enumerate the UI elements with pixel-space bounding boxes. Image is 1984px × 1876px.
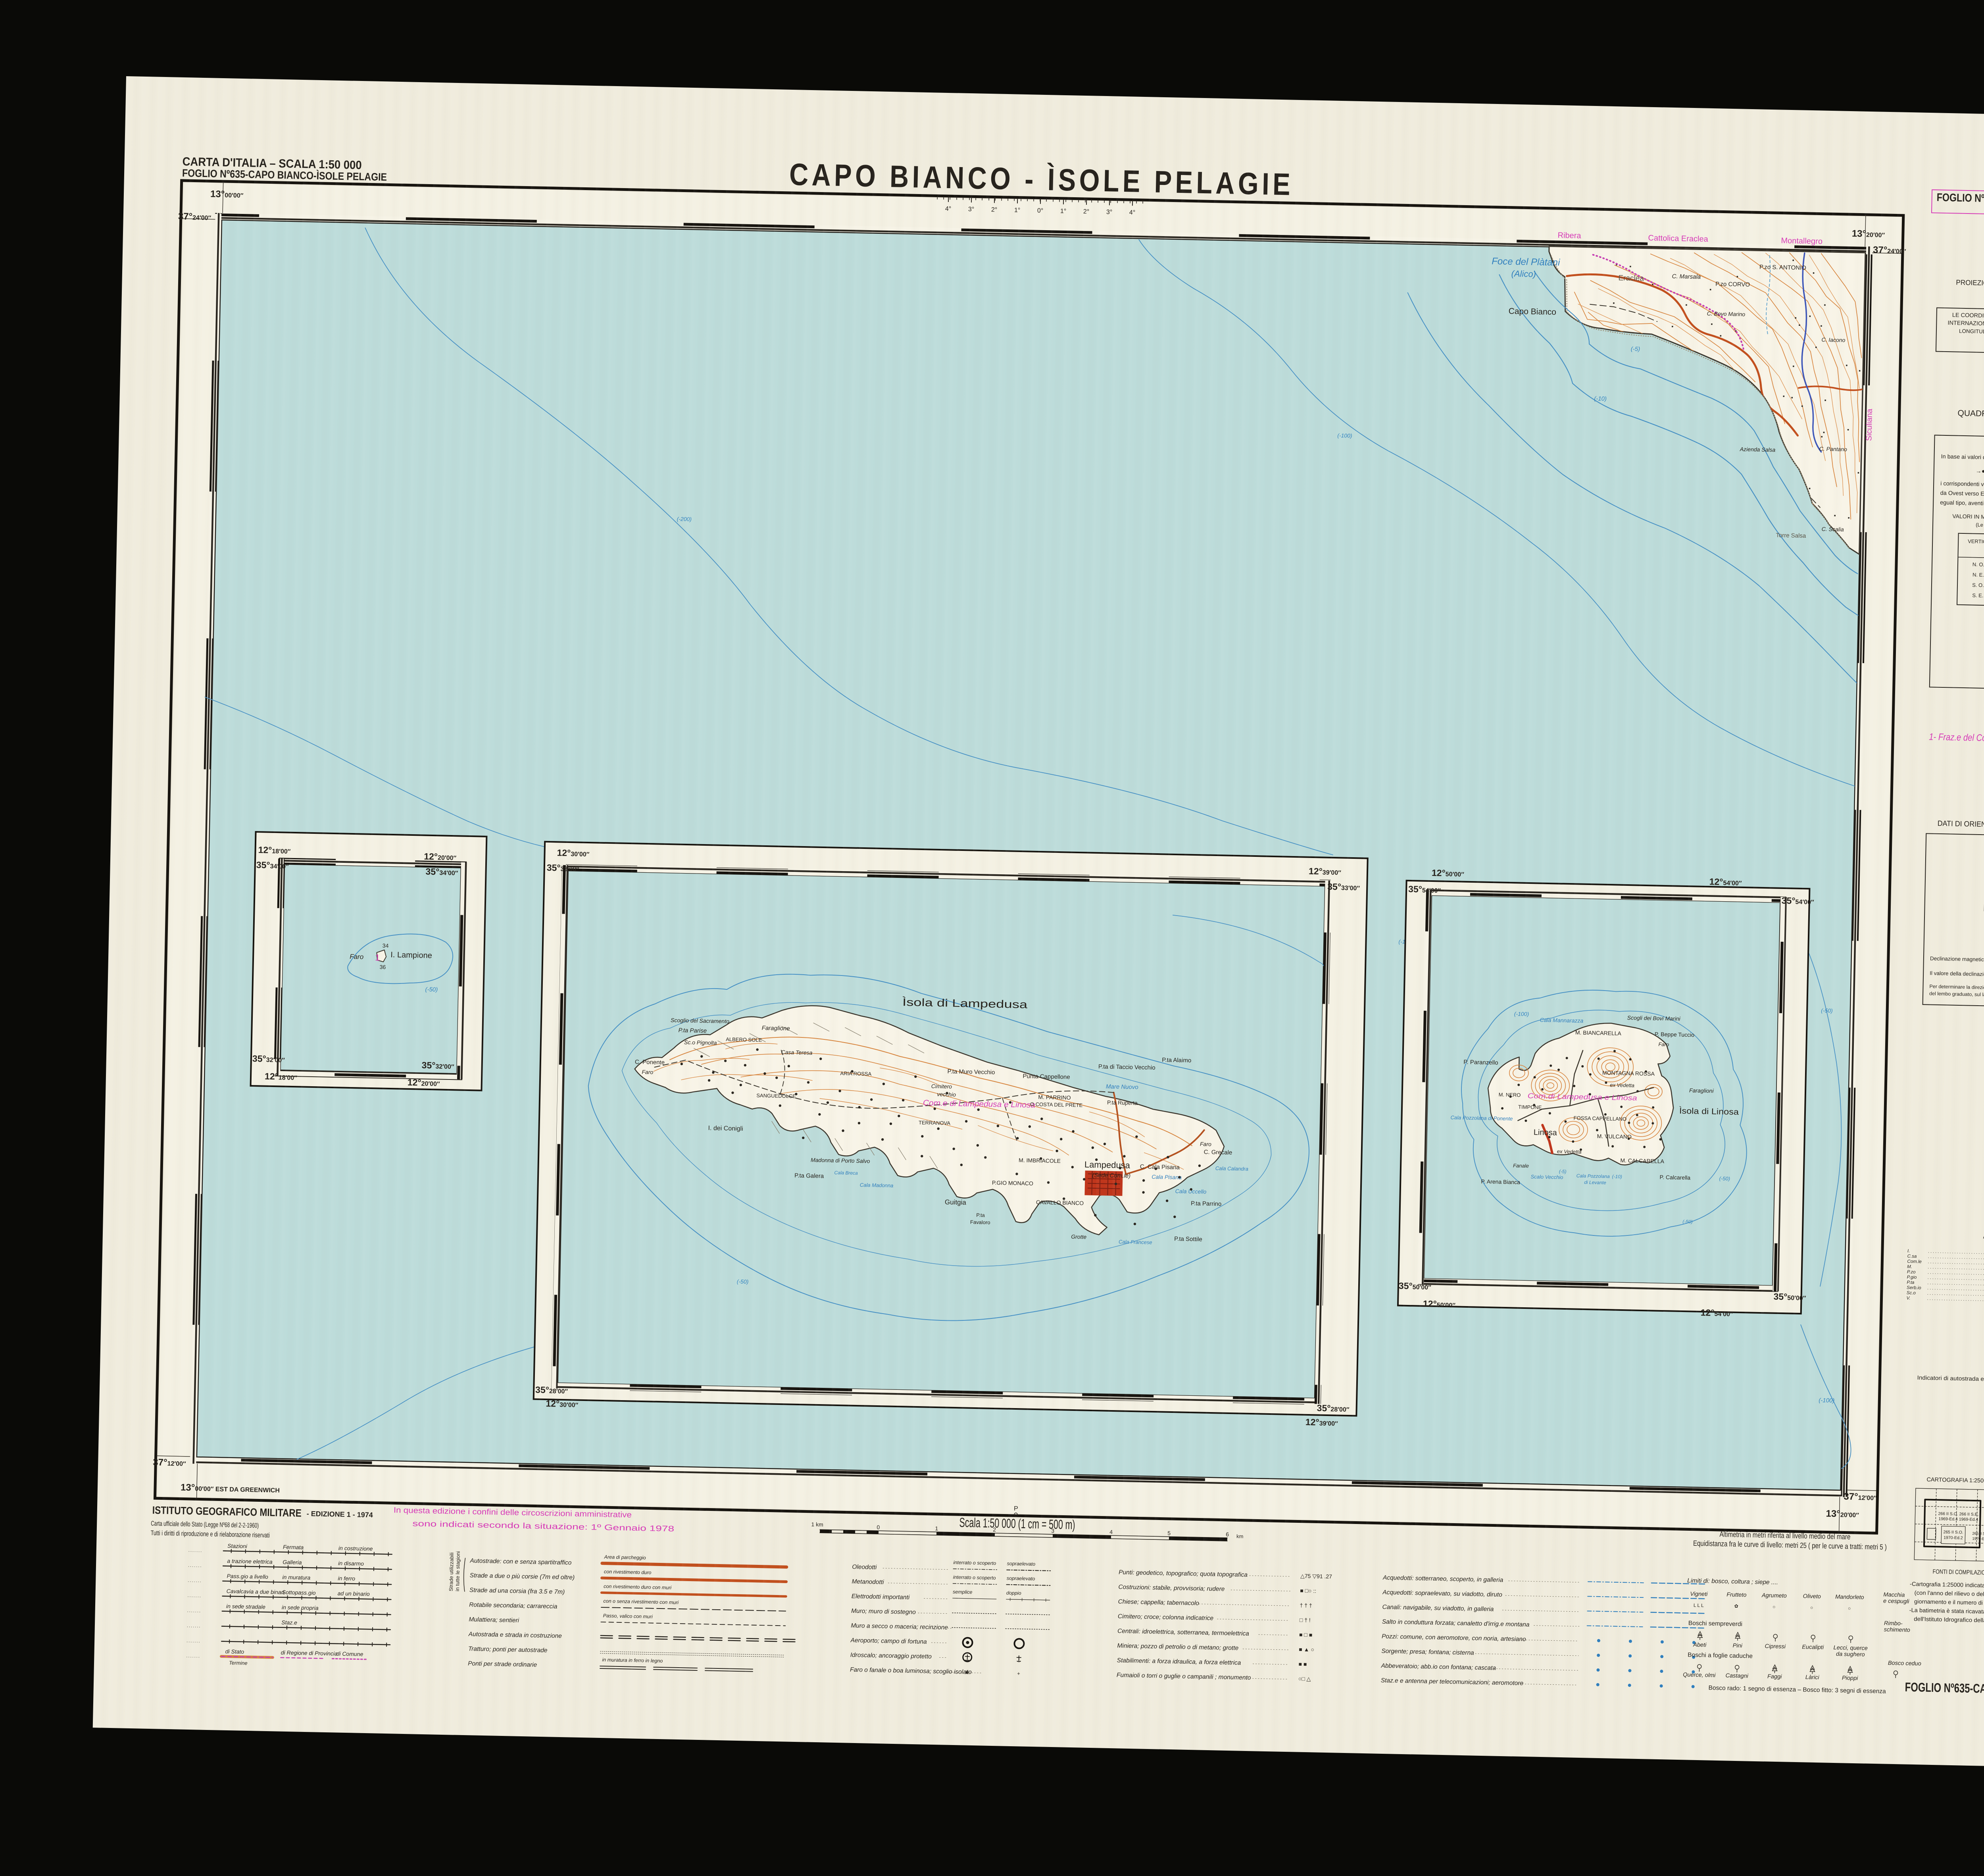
svg-text:ad un binario: ad un binario	[338, 1590, 370, 1597]
svg-text:Pioppi: Pioppi	[1842, 1675, 1858, 1682]
svg-text:C. Pantano: C. Pantano	[1819, 446, 1848, 452]
svg-text:.......: .......	[186, 1654, 200, 1659]
svg-text:Querce, olmi: Querce, olmi	[1683, 1672, 1716, 1679]
svg-text:MONTAGNA ROSSA: MONTAGNA ROSSA	[1602, 1070, 1655, 1077]
svg-text:FOSSA CAPPELLANO: FOSSA CAPPELLANO	[1573, 1115, 1626, 1122]
svg-text:sopraelevato: sopraelevato	[1007, 1561, 1035, 1567]
svg-text:Staz.e: Staz.e	[281, 1619, 297, 1626]
svg-text:in ferro: in ferro	[338, 1575, 355, 1582]
svg-text:ex Vedetta: ex Vedetta	[1610, 1082, 1634, 1088]
svg-text:di Levante: di Levante	[1584, 1179, 1606, 1185]
svg-text:Vigneti: Vigneti	[1690, 1591, 1708, 1598]
svg-text:P. Calcarella: P. Calcarella	[1659, 1174, 1690, 1181]
svg-text:Idroscalo; ancoraggio protetto: Idroscalo; ancoraggio protetto	[850, 1652, 932, 1660]
svg-text:P.ta Parrino: P.ta Parrino	[1191, 1200, 1222, 1208]
svg-text:Ìsola di Lampedusa: Ìsola di Lampedusa	[902, 996, 1028, 1010]
svg-text:L L L: L L L	[1694, 1603, 1704, 1609]
svg-text:1970-Ed.2: 1970-Ed.2	[1944, 1535, 1963, 1540]
svg-text:Guitgia: Guitgia	[945, 1198, 967, 1206]
svg-text:Cavalcavia a due binari: Cavalcavia a due binari	[227, 1588, 285, 1595]
svg-text:Boschi sempreverdi: Boschi sempreverdi	[1688, 1620, 1742, 1628]
svg-text:semplice: semplice	[953, 1589, 973, 1595]
svg-text:P. Arena Bianca: P. Arena Bianca	[1481, 1178, 1520, 1185]
svg-text:C. Marsala: C. Marsala	[1672, 273, 1701, 280]
svg-text:di Comune: di Comune	[336, 1651, 363, 1657]
svg-text:TIMPONE: TIMPONE	[1518, 1104, 1542, 1110]
svg-text:Lecci, querce: Lecci, querce	[1833, 1645, 1868, 1652]
svg-text:△75 ▽91 .27: △75 ▽91 .27	[1300, 1573, 1332, 1580]
svg-text:Sottopass.gio: Sottopass.gio	[282, 1589, 316, 1596]
svg-text:TERRANOVA: TERRANOVA	[919, 1120, 951, 1126]
svg-text:C. Bovo Marino: C. Bovo Marino	[1707, 310, 1746, 317]
svg-text:M. BIANCARELLA: M. BIANCARELLA	[1575, 1029, 1622, 1036]
svg-text:Madonna di Porto Salvo: Madonna di Porto Salvo	[811, 1156, 870, 1164]
svg-text:Acquedotti: sotterraneo, scope: Acquedotti: sotterraneo, scoperto, in ga…	[1382, 1574, 1503, 1584]
svg-text:Indicatori di autostrada e: Indicatori di autostrada e strada statal…	[1917, 1375, 1984, 1385]
svg-text:Passo, valico con muri: Passo, valico con muri	[603, 1613, 654, 1620]
svg-text:P.zo CORVO: P.zo CORVO	[1715, 281, 1750, 288]
svg-text:S. O.: S. O.	[1972, 582, 1984, 588]
svg-text:I. dei Conigli: I. dei Conigli	[708, 1125, 743, 1132]
svg-text:Faro: Faro	[642, 1069, 653, 1076]
svg-text:Miniera; pozzo di petrolio o d: Miniera; pozzo di petrolio o di metano; …	[1117, 1642, 1239, 1651]
svg-text:Serb.io: Serb.io	[1907, 1285, 1921, 1291]
svg-text:3: 3	[1051, 1528, 1054, 1534]
svg-text:Area di parcheggio: Area di parcheggio	[604, 1554, 646, 1560]
svg-text:dell'Istituto Idrografico dell: dell'Istituto Idrografico della Marina.	[1914, 1616, 1984, 1624]
svg-text:■ □ ■: ■ □ ■	[1299, 1632, 1312, 1638]
svg-text:★: ★	[964, 1669, 970, 1676]
svg-text:Strade ad una corsia (fra 3.5: Strade ad una corsia (fra 3.5 e 7m)	[469, 1587, 565, 1595]
svg-text:del lembo graduato, sul lato N: del lembo graduato, sul lato Nord, che i…	[1929, 991, 1984, 1001]
svg-text:in muratura: in muratura	[282, 1574, 310, 1581]
svg-text:P.ta Sottile: P.ta Sottile	[1174, 1235, 1202, 1243]
svg-text:Cala Madonna: Cala Madonna	[860, 1182, 894, 1189]
svg-text:Centrali: idroelettrica, sotte: Centrali: idroelettrica, sotterranea, te…	[1117, 1628, 1249, 1637]
svg-text:Pini: Pini	[1733, 1643, 1743, 1649]
svg-text:Cimitero; croce; colonna indic: Cimitero; croce; colonna indicatrice	[1118, 1613, 1214, 1622]
svg-text:Faro: Faro	[1200, 1141, 1211, 1147]
svg-text:M.: M.	[1907, 1264, 1912, 1269]
svg-text:Metanodotti: Metanodotti	[852, 1578, 884, 1586]
svg-text:Faraglione: Faraglione	[762, 1025, 790, 1032]
svg-text:-Cartografia 1:25000 indicata: -Cartografia 1:25000 indicata nel grafic…	[1910, 1581, 1984, 1589]
svg-text:Equidistanza fra le curve di l: Equidistanza fra le curve di livello: me…	[1693, 1539, 1887, 1552]
svg-text:Pozzi: comune, con aeromotore,: Pozzi: comune, con aeromotore, con noria…	[1382, 1633, 1526, 1643]
svg-text:Carta ufficiale dello Stato (L: Carta ufficiale dello Stato (Legge Nº68 …	[151, 1520, 259, 1530]
svg-text:○: ○	[1773, 1604, 1776, 1610]
svg-text:Scogli dei Bovi Marini: Scogli dei Bovi Marini	[1627, 1014, 1681, 1022]
svg-text:egual tipo, aventi lo stesso v: egual tipo, aventi lo stesso valore chil…	[1940, 500, 1984, 508]
svg-text:1: 1	[375, 952, 380, 962]
svg-text:✿: ✿	[1734, 1603, 1738, 1609]
svg-text:doppio: doppio	[1006, 1590, 1021, 1596]
svg-text:3°: 3°	[968, 206, 975, 213]
svg-text:P: P	[1014, 1505, 1018, 1512]
svg-text:265 II S.E.: 265 II S.E.	[1972, 1532, 1984, 1536]
svg-text:interrato o scoperto: interrato o scoperto	[953, 1574, 996, 1581]
svg-text:4°: 4°	[945, 206, 952, 212]
svg-text:Cala Pozzolana: Cala Pozzolana	[1576, 1173, 1610, 1179]
svg-text:O COSTA DEL PRETE: O COSTA DEL PRETE	[1030, 1101, 1083, 1108]
svg-text:C. Iacono: C. Iacono	[1821, 337, 1845, 343]
svg-text:FONTI DI COMPILAZIONE: FONTI DI COMPILAZIONE	[1932, 1568, 1984, 1576]
svg-text:P.ta Ruperta: P.ta Ruperta	[1107, 1099, 1138, 1106]
svg-text:N. O.: N. O.	[1972, 561, 1984, 568]
svg-text:1- Fraz.e del Com.e di Lampedu: 1- Fraz.e del Com.e di Lampedusa e Linos…	[1929, 731, 1984, 745]
svg-text:Faro: Faro	[1658, 1041, 1669, 1048]
svg-text:V.: V.	[1906, 1296, 1910, 1301]
svg-text:Pass.gio a livello: Pass.gio a livello	[227, 1573, 268, 1580]
svg-text:P.ta: P.ta	[1907, 1280, 1914, 1285]
svg-text:266 II S.O. 266 II S.E.: 266 II S.O. 266 II S.E.	[1938, 1511, 1978, 1517]
svg-text:(-10): (-10)	[1594, 395, 1607, 402]
svg-text:265 II S.O.: 265 II S.O.	[1943, 1530, 1963, 1535]
svg-text:P.ta Parise: P.ta Parise	[678, 1027, 707, 1034]
svg-text:Autostrada e strada in costruz: Autostrada e strada in costruzione	[468, 1631, 562, 1639]
svg-text:Agrumeto: Agrumeto	[1761, 1592, 1787, 1599]
svg-text:Foce del Plàtani: Foce del Plàtani	[1492, 256, 1560, 268]
svg-text:(-200): (-200)	[677, 516, 692, 522]
svg-text:Bosco rado: 1 segno di essenza: Bosco rado: 1 segno di essenza – Bosco f…	[1708, 1685, 1886, 1695]
svg-text:P.ta Muro Vecchio: P.ta Muro Vecchio	[947, 1068, 995, 1076]
svg-text:Oliveto: Oliveto	[1803, 1593, 1821, 1600]
svg-text:In base ai valori delle coordi: In base ai valori delle coordinate dei v…	[1941, 454, 1984, 464]
svg-text:a trazione elettrica: a trazione elettrica	[227, 1558, 273, 1565]
svg-text:Stazioni: Stazioni	[227, 1543, 248, 1549]
svg-text:..............................: ..............................	[1927, 1296, 1984, 1303]
svg-text:.......: .......	[187, 1593, 202, 1599]
svg-text:□ † !: □ † !	[1300, 1617, 1311, 1624]
svg-text:Eucalipti: Eucalipti	[1802, 1644, 1824, 1651]
svg-text:Scalo Vecchio: Scalo Vecchio	[1530, 1174, 1563, 1180]
svg-text:Cala Francese: Cala Francese	[1119, 1239, 1152, 1245]
svg-text:P.zo: P.zo	[1907, 1270, 1916, 1274]
svg-text:(-5): (-5)	[1631, 346, 1640, 352]
svg-text:Elettrodotti importanti: Elettrodotti importanti	[852, 1593, 910, 1601]
svg-text:Rimbo-: Rimbo-	[1884, 1620, 1903, 1627]
svg-text:Cala Mannarazza: Cala Mannarazza	[1540, 1017, 1583, 1024]
svg-text:Capo Bianco: Capo Bianco	[1508, 307, 1556, 317]
svg-text:1°: 1°	[1014, 207, 1021, 214]
svg-text:.......: .......	[188, 1578, 202, 1584]
svg-text:Macchia: Macchia	[1883, 1591, 1905, 1598]
svg-text:(Alico): (Alico)	[1511, 269, 1536, 279]
svg-text:.......: .......	[187, 1609, 202, 1614]
svg-text:(Le cifre più grandi indicano: (Le cifre più grandi indicano le decine …	[1976, 522, 1984, 531]
svg-text:.......: .......	[187, 1624, 201, 1629]
svg-text:- EDIZIONE 1 - 1974: - EDIZIONE 1 - 1974	[307, 1510, 373, 1519]
svg-text:Faggi: Faggi	[1767, 1674, 1782, 1680]
svg-text:Cala Pisana: Cala Pisana	[1152, 1174, 1182, 1181]
svg-text:Sc.o: Sc.o	[1907, 1291, 1916, 1295]
svg-text:P.ta Alaimo: P.ta Alaimo	[1162, 1056, 1191, 1064]
svg-text:Montallegro: Montallegro	[1781, 237, 1823, 246]
svg-text:in sede stradale: in sede stradale	[226, 1603, 265, 1610]
svg-text:Abbeveratoio; abb.io con fonta: Abbeveratoio; abb.io con fontana; cascat…	[1380, 1662, 1496, 1672]
svg-text:CAVALLO BIANCO: CAVALLO BIANCO	[1036, 1199, 1084, 1206]
svg-text:Grotte: Grotte	[1071, 1233, 1086, 1240]
svg-text:C. Cala Pisana: C. Cala Pisana	[1140, 1163, 1180, 1171]
svg-text:M. CALCARELLA: M. CALCARELLA	[1620, 1157, 1664, 1164]
svg-text:con rivestimento duro: con rivestimento duro	[604, 1569, 652, 1575]
svg-text:Casa Teresa: Casa Teresa	[781, 1049, 812, 1056]
svg-text:Castagni: Castagni	[1725, 1672, 1748, 1679]
svg-text:Acquedotti: sopraelevato, su v: Acquedotti: sopraelevato, su viadotto, d…	[1382, 1589, 1502, 1598]
svg-text:C. Grecale: C. Grecale	[1204, 1149, 1232, 1156]
svg-text:FOGLIO Nº635-CAPO BIANCO-ÌSOLE: FOGLIO Nº635-CAPO BIANCO-ÌSOLE PELAGIE	[1936, 191, 1984, 207]
svg-text:6: 6	[1226, 1531, 1229, 1537]
svg-text:Stabilimenti: a forza idraulic: Stabilimenti: a forza idraulica, a forza…	[1117, 1657, 1241, 1666]
svg-text:Lampedusa: Lampedusa	[1084, 1159, 1130, 1170]
svg-text:Punta Cappellone: Punta Cappellone	[1023, 1073, 1070, 1080]
svg-text:in disarmo: in disarmo	[338, 1560, 364, 1567]
svg-text:sono indicati secondo la s: sono indicati secondo la situazione: 1º …	[412, 1519, 674, 1533]
svg-text:Boschi a foglie caduche: Boschi a foglie caduche	[1688, 1651, 1753, 1659]
svg-text:■ ■: ■ ■	[1298, 1661, 1307, 1667]
svg-text:Faro o fanale o boa luminosa;: Faro o fanale o boa luminosa; scoglio is…	[850, 1666, 972, 1676]
svg-text:1969-Ed.4 1969-Ed.4: 1969-Ed.4 1969-Ed.4	[1938, 1516, 1978, 1522]
svg-text:0: 0	[877, 1524, 880, 1530]
svg-text:M. PARRINO: M. PARRINO	[1038, 1094, 1071, 1101]
svg-text:P.ta di Taccio Vecchio: P.ta di Taccio Vecchio	[1098, 1063, 1155, 1071]
svg-text:P.ta Galera: P.ta Galera	[794, 1172, 824, 1180]
svg-text:Sc.o Pignolta: Sc.o Pignolta	[684, 1039, 717, 1046]
svg-text:0°: 0°	[1037, 208, 1044, 214]
svg-text:Strade a due o più corsie (7m: Strade a due o più corsie (7m ed oltre)	[470, 1572, 575, 1581]
svg-text:P. Beppe Tuccio: P. Beppe Tuccio	[1655, 1031, 1695, 1038]
svg-text:3°: 3°	[1106, 209, 1113, 215]
svg-text:Fumaioli o torri o guglie o ca: Fumaioli o torri o guglie o campanili ; …	[1117, 1672, 1251, 1681]
svg-text:i corrispondenti valori chilom: i corrispondenti valori chilometrici int…	[1940, 481, 1984, 491]
svg-text:.......: .......	[188, 1563, 202, 1568]
svg-text:QUADRETTATURA CHILOMETRICA G: QUADRETTATURA CHILOMETRICA GAUSS - BOAGA	[1957, 409, 1984, 422]
svg-text:1: 1	[935, 1525, 938, 1532]
svg-text:Cala Pozzolana di Ponente: Cala Pozzolana di Ponente	[1450, 1114, 1513, 1122]
svg-text:ISTITUTO GEOGRAFICO MILITARE: ISTITUTO GEOGRAFICO MILITARE	[152, 1504, 302, 1519]
svg-text:Faraglioni: Faraglioni	[1689, 1087, 1714, 1094]
svg-text:Sorgente; presa; fontana; cist: Sorgente; presa; fontana; cisterna	[1381, 1648, 1474, 1657]
svg-text:FOGLIO Nº635-CAPO BIANCO-ÌSOLE: FOGLIO Nº635-CAPO BIANCO-ÌSOLE PELAGIE	[1905, 1680, 1984, 1699]
svg-text:Faro: Faro	[350, 953, 363, 961]
svg-text:2°: 2°	[991, 206, 998, 213]
svg-text:P. Paranzello: P. Paranzello	[1463, 1059, 1498, 1066]
svg-text:Cimitero: Cimitero	[931, 1083, 952, 1090]
svg-text:Scala 1:50 000 (1 cm = 500 m): Scala 1:50 000 (1 cm = 500 m)	[959, 1515, 1075, 1532]
svg-text:LONGITUDINE DI ROMA (M. MARIO): LONGITUDINE DI ROMA (M. MARIO), DA GREEN…	[1959, 328, 1984, 338]
svg-text:4°: 4°	[1129, 209, 1136, 216]
svg-text:(con l'anno del rilievo o dell: (con l'anno del rilievo o dell'ultimo ag…	[1914, 1590, 1984, 1598]
svg-text:Autostrade: con e senza sparti: Autostrade: con e senza spartitraffico	[469, 1557, 572, 1566]
svg-text:Aeroporto; campo di fortuna: Aeroporto; campo di fortuna	[850, 1637, 927, 1645]
svg-text:M. IMBRIACOLE: M. IMBRIACOLE	[1019, 1157, 1061, 1164]
svg-text:Eraclea: Eraclea	[1618, 274, 1644, 283]
svg-text:○: ○	[1848, 1606, 1851, 1611]
svg-text:N. E.: N. E.	[1972, 571, 1984, 578]
svg-text:+: +	[1017, 1670, 1020, 1676]
svg-text:34: 34	[383, 943, 389, 949]
svg-text:2: 2	[993, 1526, 996, 1533]
svg-text:in sede propria: in sede propria	[282, 1604, 319, 1611]
svg-text:1 km: 1 km	[811, 1521, 823, 1528]
svg-text:Scoglio del Sacramento: Scoglio del Sacramento	[671, 1017, 729, 1024]
svg-text:(-100): (-100)	[1819, 1397, 1834, 1404]
svg-text:C.sa: C.sa	[1907, 1254, 1917, 1259]
svg-text:Mare Nuovo: Mare Nuovo	[1106, 1083, 1138, 1091]
svg-text:Galleria: Galleria	[283, 1559, 302, 1566]
svg-text:P.GIO MONACO: P.GIO MONACO	[992, 1179, 1033, 1187]
svg-text:VERTICE: VERTICE	[1968, 538, 1984, 545]
svg-text:Torre Salsa: Torre Salsa	[1776, 532, 1806, 539]
svg-text:■ ▲ ○: ■ ▲ ○	[1299, 1646, 1314, 1653]
svg-text:vecchio: vecchio	[937, 1091, 956, 1098]
svg-text:Salto in conduttura forzata; c: Salto in conduttura forzata; canaletto d…	[1382, 1618, 1530, 1628]
svg-text:da Ovest verso Est). Tracciare: da Ovest verso Est). Tracciare le rette …	[1940, 490, 1984, 500]
svg-text:ALBERO SOLE: ALBERO SOLE	[726, 1036, 762, 1043]
svg-text:† † †: † † †	[1300, 1602, 1312, 1609]
svg-text:I.: I.	[1907, 1249, 1910, 1253]
svg-text:■ □○ ::: ■ □○ ::	[1300, 1587, 1316, 1594]
svg-text:(Sede Com.le): (Sede Com.le)	[1092, 1172, 1130, 1179]
svg-text:di Stato: di Stato	[225, 1648, 244, 1655]
svg-text:Tutti i diritti di riproduzion: Tutti i diritti di riproduzione e di rie…	[151, 1529, 270, 1539]
svg-text:CARTOGRAFIA 1:25000: CARTOGRAFIA 1:25000	[1926, 1477, 1984, 1484]
svg-text:Fermata: Fermata	[283, 1544, 304, 1551]
svg-text:Fanale: Fanale	[1513, 1162, 1529, 1169]
svg-text:1°: 1°	[1060, 208, 1067, 215]
svg-text:Tratturo; ponti per autostrade: Tratturo; ponti per autostrade	[468, 1645, 548, 1654]
svg-text:Mulattiera; sentieri: Mulattiera; sentieri	[469, 1616, 519, 1624]
svg-text:Azienda Salsa: Azienda Salsa	[1740, 446, 1776, 453]
svg-text:SANGUEDOLCE: SANGUEDOLCE	[756, 1093, 796, 1099]
svg-text:(-100): (-100)	[1337, 432, 1352, 439]
svg-text:Punti: geodetico, topografico;: Punti: geodetico, topografico; quota top…	[1119, 1569, 1248, 1578]
svg-text:.......: .......	[186, 1639, 201, 1644]
svg-text:P.gio: P.gio	[1907, 1275, 1917, 1280]
svg-text:P.ta: P.ta	[976, 1212, 985, 1218]
svg-text:2°: 2°	[1083, 208, 1090, 215]
svg-text:36: 36	[380, 964, 386, 970]
svg-text:in costruzione: in costruzione	[338, 1545, 373, 1552]
svg-text:Muro a secco o maceria; recinz: Muro a secco o maceria; recinzione	[851, 1622, 948, 1631]
svg-text:in muratura in ferro in le: in muratura in ferro in legno	[602, 1657, 663, 1664]
svg-text:Il valore della declinazione d: Il valore della declinazione diminuisce …	[1930, 970, 1984, 979]
svg-text:(-10): (-10)	[1612, 1174, 1623, 1179]
svg-text:ARIA ROSSA: ARIA ROSSA	[840, 1070, 871, 1077]
svg-text:I. Lampione: I. Lampione	[390, 951, 432, 960]
svg-text:Declinazione magnetica nel cen: Declinazione magnetica nel centro carta …	[1930, 955, 1984, 966]
svg-text:Frutteto: Frutteto	[1726, 1591, 1746, 1598]
svg-text:(-100): (-100)	[1514, 1010, 1529, 1017]
svg-text:-La batimetria è stata ricavat: -La batimetria è stata ricavata dai rili…	[1909, 1607, 1984, 1616]
svg-text:Cipressi: Cipressi	[1765, 1643, 1786, 1650]
svg-text:ex Vedetta: ex Vedetta	[1557, 1149, 1582, 1155]
svg-text:○: ○	[1810, 1605, 1813, 1610]
svg-text:Mandorleto: Mandorleto	[1835, 1594, 1864, 1601]
svg-text:Canali: navigabile, su viadott: Canali: navigabile, su viadotto, in gall…	[1382, 1604, 1494, 1613]
svg-text:Favaloro: Favaloro	[970, 1219, 990, 1226]
svg-text:1970-Ed.2: 1970-Ed.2	[1972, 1537, 1984, 1541]
svg-text:P.zo S. ANTONIO: P.zo S. ANTONIO	[1759, 264, 1806, 271]
svg-text:Cala Breca: Cala Breca	[834, 1170, 858, 1176]
svg-text:Abeti: Abeti	[1693, 1642, 1707, 1649]
svg-text:(-50): (-50)	[425, 986, 438, 993]
svg-text:Oleodotti: Oleodotti	[852, 1564, 877, 1571]
svg-text:(-50): (-50)	[1719, 1176, 1730, 1182]
svg-text:Com.le: Com.le	[1907, 1259, 1922, 1264]
svg-text:giornamento e il numero di edi: giornamento e il numero di edizione).	[1914, 1599, 1984, 1607]
svg-text:DATI DI ORIENTAMENTO PER I: DATI DI ORIENTAMENTO PER IL CENTRO DELLA…	[1938, 820, 1984, 832]
svg-text:C. Scalia: C. Scalia	[1822, 526, 1844, 533]
svg-text:M. VULCANO: M. VULCANO	[1597, 1133, 1632, 1140]
svg-text:di Regione di Provincia: di Regione di Provincia	[281, 1649, 338, 1657]
svg-text:(-5): (-5)	[1559, 1169, 1567, 1174]
svg-text:Staz.e e antenna per telecomun: Staz.e e antenna per telecomunicazioni; …	[1381, 1677, 1524, 1687]
svg-text:da sughero: da sughero	[1836, 1651, 1865, 1658]
svg-text:schimento: schimento	[1884, 1626, 1910, 1633]
svg-text:Strade utilizzabili: Strade utilizzabili	[448, 1553, 455, 1591]
svg-text:Rotabile secondaria; carrarecc: Rotabile secondaria; carrareccia	[469, 1601, 558, 1610]
svg-text:PROIEZIONE CONFORME UNIVERSA: PROIEZIONE CONFORME UNIVERSALE TRASVERSA	[1956, 278, 1984, 290]
svg-text:Ponti per strade ordinarie: Ponti per strade ordinarie	[468, 1660, 537, 1668]
svg-text:(-50): (-50)	[1821, 1007, 1833, 1014]
svg-text:Làrici: Làrici	[1805, 1674, 1820, 1681]
svg-text:interrato o scoperto: interrato o scoperto	[953, 1560, 996, 1566]
svg-text:Siculiana: Siculiana	[1865, 408, 1874, 441]
svg-text:con o senza rivestimento c: con o senza rivestimento con muri	[603, 1598, 679, 1605]
svg-text:→● FUSO OVEST: →● FUSO OVEST	[1976, 468, 1984, 476]
svg-text:e cespugli: e cespugli	[1883, 1598, 1909, 1605]
svg-text:(-50): (-50)	[737, 1278, 749, 1285]
svg-text:S. E.: S. E.	[1972, 592, 1983, 598]
svg-text:con rivestimento duro c: con rivestimento duro con muri	[604, 1584, 672, 1590]
svg-text:.......: .......	[188, 1548, 203, 1553]
svg-text:5: 5	[1167, 1530, 1171, 1536]
svg-text:Ribera: Ribera	[1557, 231, 1581, 240]
svg-text:Costruzioni: stabile, provviso: Costruzioni: stabile, provvisoria; ruder…	[1118, 1584, 1225, 1592]
svg-text:in tutte le stagioni: in tutte le stagioni	[454, 1551, 461, 1591]
svg-text:(-50): (-50)	[1682, 1219, 1693, 1225]
svg-text:Termine: Termine	[229, 1660, 248, 1666]
svg-text:Ìsola di Linosa: Ìsola di Linosa	[1679, 1106, 1739, 1117]
svg-text:4: 4	[1109, 1529, 1113, 1535]
svg-text:Cattolica Eraclea: Cattolica Eraclea	[1648, 234, 1708, 244]
svg-text:Cala Calandra: Cala Calandra	[1215, 1165, 1248, 1172]
svg-text:Muro; muro di sostegno: Muro; muro di sostegno	[851, 1608, 916, 1616]
svg-text:Chiese; cappella; tabernacolo: Chiese; cappella; tabernacolo	[1118, 1598, 1200, 1607]
svg-text:C. Ponente: C. Ponente	[635, 1058, 665, 1066]
svg-text:○□ △: ○□ △	[1298, 1676, 1311, 1682]
svg-text:Bosco ceduo: Bosco ceduo	[1888, 1660, 1921, 1667]
svg-text:Linosa: Linosa	[1534, 1128, 1557, 1137]
svg-text:sopraelevato: sopraelevato	[1007, 1576, 1035, 1582]
svg-text:km: km	[1236, 1533, 1244, 1539]
svg-text:Limiti di: bosco, coltura ; si: Limiti di: bosco, coltura ; siepe ....	[1687, 1577, 1778, 1586]
